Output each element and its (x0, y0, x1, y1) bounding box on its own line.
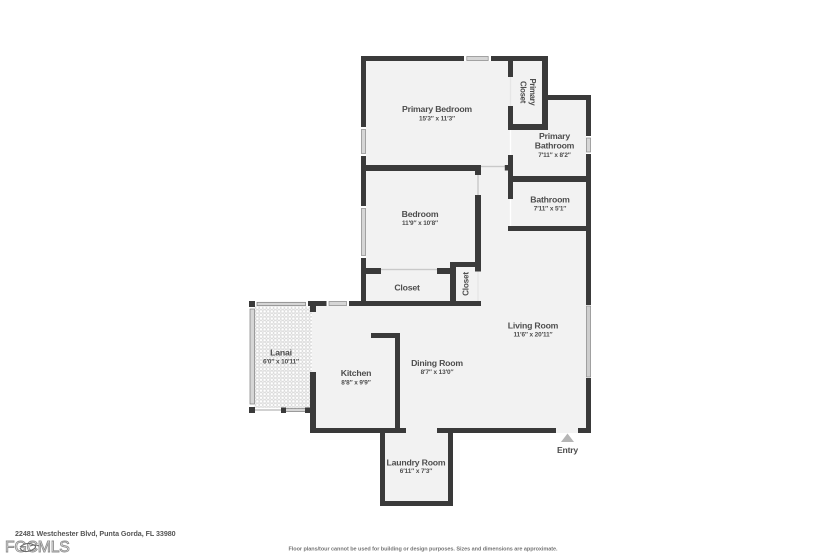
svg-text:Lanai: Lanai (270, 348, 292, 358)
svg-text:Dining Room: Dining Room (411, 358, 463, 368)
svg-text:Primary Bedroom: Primary Bedroom (402, 104, 472, 114)
svg-text:Closet: Closet (394, 283, 420, 293)
svg-text:7′11″ x 8′2″: 7′11″ x 8′2″ (538, 152, 571, 159)
svg-text:15′3″ x 11′3″: 15′3″ x 11′3″ (419, 116, 455, 123)
svg-text:11′9″ x 10′8″: 11′9″ x 10′8″ (402, 220, 438, 227)
svg-text:Living Room: Living Room (508, 321, 559, 331)
svg-text:6′11″ x 7′3″: 6′11″ x 7′3″ (400, 468, 433, 475)
svg-text:8′7″ x 13′0″: 8′7″ x 13′0″ (421, 369, 454, 376)
svg-text:Primary: Primary (528, 79, 537, 107)
svg-text:Primary: Primary (539, 131, 570, 141)
svg-text:Closet: Closet (462, 272, 471, 296)
svg-text:11′6″ x 20′11″: 11′6″ x 20′11″ (513, 332, 552, 339)
svg-text:22481 Westchester Blvd, Punta: 22481 Westchester Blvd, Punta Gorda, FL … (15, 530, 176, 538)
svg-text:8′8″ x 9′9″: 8′8″ x 9′9″ (341, 380, 370, 387)
svg-text:Entry: Entry (557, 445, 578, 455)
svg-text:Bathroom: Bathroom (530, 195, 570, 205)
svg-text:Bathroom: Bathroom (535, 141, 575, 151)
svg-text:7′11″ x 5′1″: 7′11″ x 5′1″ (534, 206, 567, 213)
svg-text:FGCMLS: FGCMLS (5, 539, 70, 556)
svg-text:Kitchen: Kitchen (341, 368, 371, 378)
svg-text:6′0″ x 10′11″: 6′0″ x 10′11″ (263, 359, 299, 366)
svg-text:Bedroom: Bedroom (402, 209, 439, 219)
svg-text:Floor plans/tour cannot be use: Floor plans/tour cannot be used for buil… (288, 547, 558, 553)
svg-text:Laundry Room: Laundry Room (387, 458, 446, 468)
svg-text:Closet: Closet (519, 81, 528, 104)
